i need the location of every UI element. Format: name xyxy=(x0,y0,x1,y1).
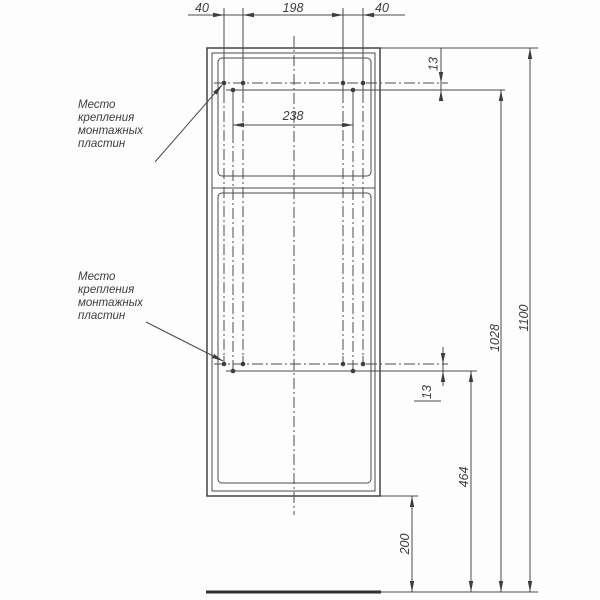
dim-200: 200 xyxy=(398,534,412,556)
note-line: пластин xyxy=(78,310,126,322)
arrowhead xyxy=(469,581,473,592)
arrowhead xyxy=(332,13,343,17)
dimension-top-chain: 40 198 40 xyxy=(188,1,405,17)
dim-40-left: 40 xyxy=(195,1,209,15)
dimension-13-top: 13 xyxy=(427,48,444,101)
mounting-point-dot xyxy=(361,362,366,367)
arrowhead xyxy=(439,72,443,83)
note-line: монтажных xyxy=(78,125,144,137)
mounting-point-dot xyxy=(241,362,246,367)
centerlines xyxy=(214,36,505,515)
arrowhead xyxy=(439,90,443,101)
dimension-13-bottom: 13 xyxy=(414,347,445,401)
arrowhead xyxy=(243,13,254,17)
arrowhead xyxy=(528,581,532,592)
dim-13-bottom: 13 xyxy=(420,385,434,399)
mounting-point-dot xyxy=(222,362,227,367)
note-line: монтажных xyxy=(78,297,144,309)
dim-13-top: 13 xyxy=(427,57,441,71)
arrowhead xyxy=(233,123,244,127)
arrowhead xyxy=(499,581,503,592)
arrowhead xyxy=(441,371,445,382)
arrowhead xyxy=(499,90,503,101)
dim-198: 198 xyxy=(283,1,304,15)
mounting-point-dot xyxy=(241,81,246,86)
dim-1100: 1100 xyxy=(517,305,531,332)
dim-40-right: 40 xyxy=(375,1,389,15)
mounting-hole-dot xyxy=(231,369,236,374)
arrowhead xyxy=(363,13,374,17)
arrowhead xyxy=(469,371,473,382)
drawing-sheet: 40 198 40 238 13 13 200 464 xyxy=(0,0,600,600)
arrowhead xyxy=(410,581,414,592)
dimension-1100: 1100 xyxy=(517,48,532,592)
dimension-464: 464 xyxy=(457,371,473,592)
arrowhead xyxy=(528,48,532,59)
mounting-point-dot xyxy=(222,81,227,86)
note-line: Место xyxy=(78,271,116,283)
dimension-200: 200 xyxy=(398,496,414,592)
mounting-point-dot xyxy=(361,81,366,86)
inner-hole-axes xyxy=(233,132,353,361)
note-line: крепления xyxy=(78,284,134,296)
arrowhead xyxy=(410,496,414,507)
dim-1028: 1028 xyxy=(488,324,502,352)
dimension-1028: 1028 xyxy=(488,90,503,592)
mounting-point-dot xyxy=(341,81,346,86)
mounting-hole-dot xyxy=(231,88,236,93)
dimension-238: 238 xyxy=(233,109,353,127)
mounting-hole-dot xyxy=(351,88,356,93)
mount-note-upper: Место крепления монтажных пластин xyxy=(78,84,224,162)
note-line: пластин xyxy=(78,138,126,150)
technical-drawing: 40 198 40 238 13 13 200 464 xyxy=(0,0,600,600)
note-line: крепления xyxy=(78,112,134,124)
mounting-hole-dot xyxy=(351,369,356,374)
arrowhead xyxy=(342,123,353,127)
arrowhead xyxy=(441,353,445,364)
mount-note-lower: Место крепления монтажных пластин xyxy=(78,271,224,363)
mounting-point-dot xyxy=(341,362,346,367)
note-line: Место xyxy=(78,99,116,111)
dim-464: 464 xyxy=(457,467,471,488)
dim-238: 238 xyxy=(282,109,304,123)
leader-line-lower xyxy=(146,322,223,361)
arrowhead xyxy=(213,13,224,17)
